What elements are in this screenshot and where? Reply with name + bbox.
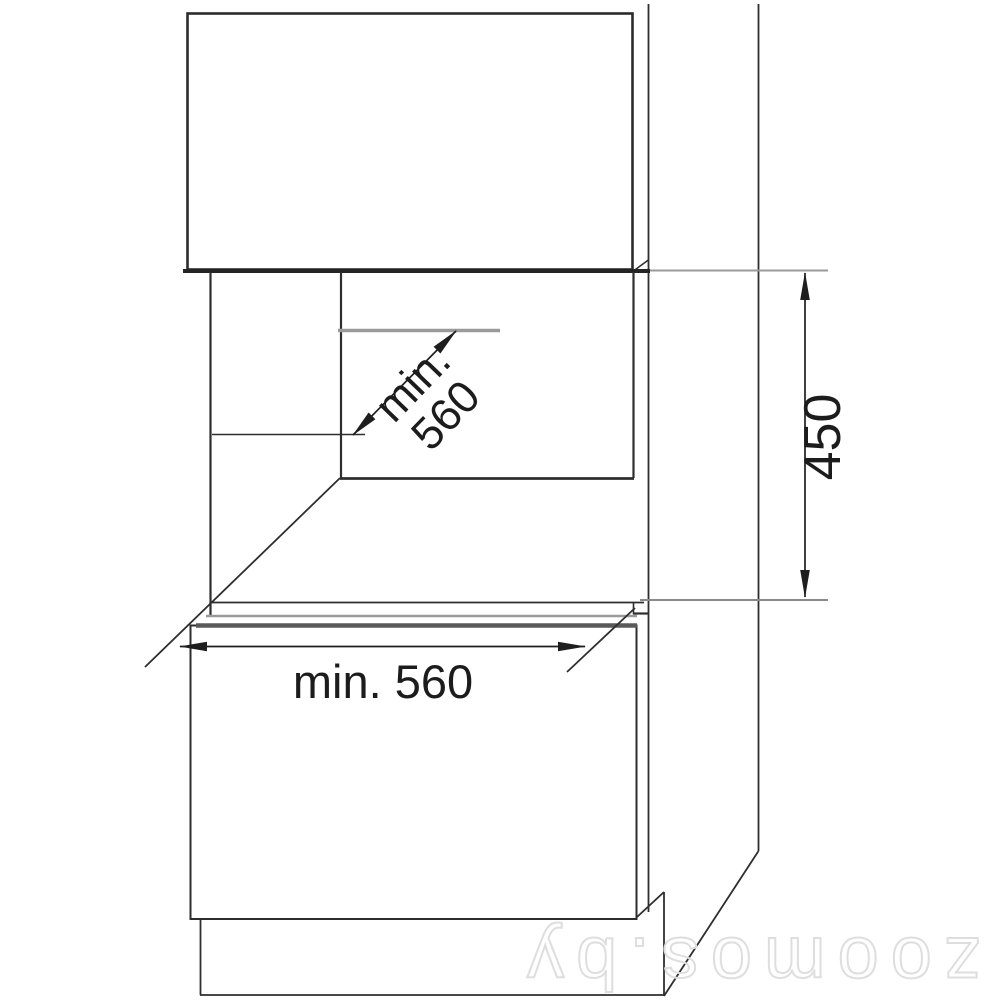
watermark: zoomos.by bbox=[515, 922, 981, 1000]
installation-diagram: min. 560 450 min. 560 zoomos.by bbox=[0, 0, 1000, 1000]
side-panel-foot-edge bbox=[637, 892, 664, 917]
dimension-niche-depth: min. 560 bbox=[212, 331, 500, 464]
height-dimension-label: 450 bbox=[794, 394, 852, 481]
installation-diagram-page: min. 560 450 min. 560 zoomos.by bbox=[0, 0, 1000, 1000]
side-panel-top-corner-edge bbox=[634, 260, 649, 271]
upper-cabinet-front bbox=[188, 14, 633, 270]
dimension-niche-height: 450 bbox=[640, 271, 852, 601]
upper-cabinet bbox=[183, 14, 650, 272]
width-dimension-label: min. 560 bbox=[293, 655, 473, 708]
cabinet-side-panel bbox=[634, 4, 759, 996]
depth-dimension-label: min. 560 bbox=[364, 335, 493, 464]
